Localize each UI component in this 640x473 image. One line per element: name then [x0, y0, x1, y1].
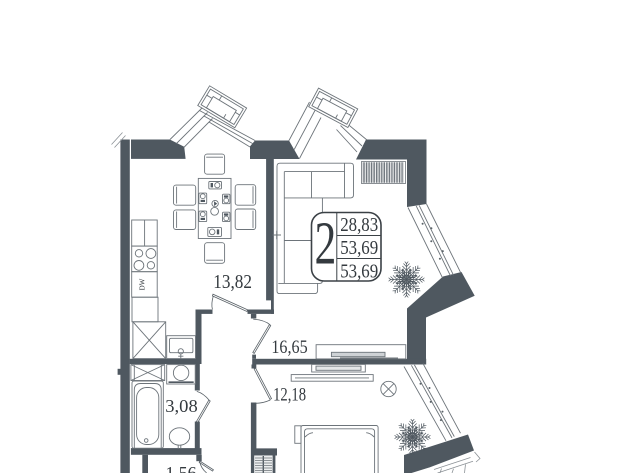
svg-text:53,69: 53,69 — [340, 238, 378, 259]
svg-text:28,83: 28,83 — [340, 215, 378, 236]
svg-text:13,82: 13,82 — [213, 271, 252, 293]
svg-text:53,69: 53,69 — [340, 261, 378, 282]
svg-text:12,18: 12,18 — [273, 386, 306, 406]
svg-text:1,56: 1,56 — [166, 463, 197, 473]
svg-text:2: 2 — [315, 211, 337, 278]
svg-text:16,65: 16,65 — [271, 338, 307, 358]
svg-text:DW: DW — [139, 278, 147, 290]
svg-text:3,08: 3,08 — [165, 396, 198, 416]
